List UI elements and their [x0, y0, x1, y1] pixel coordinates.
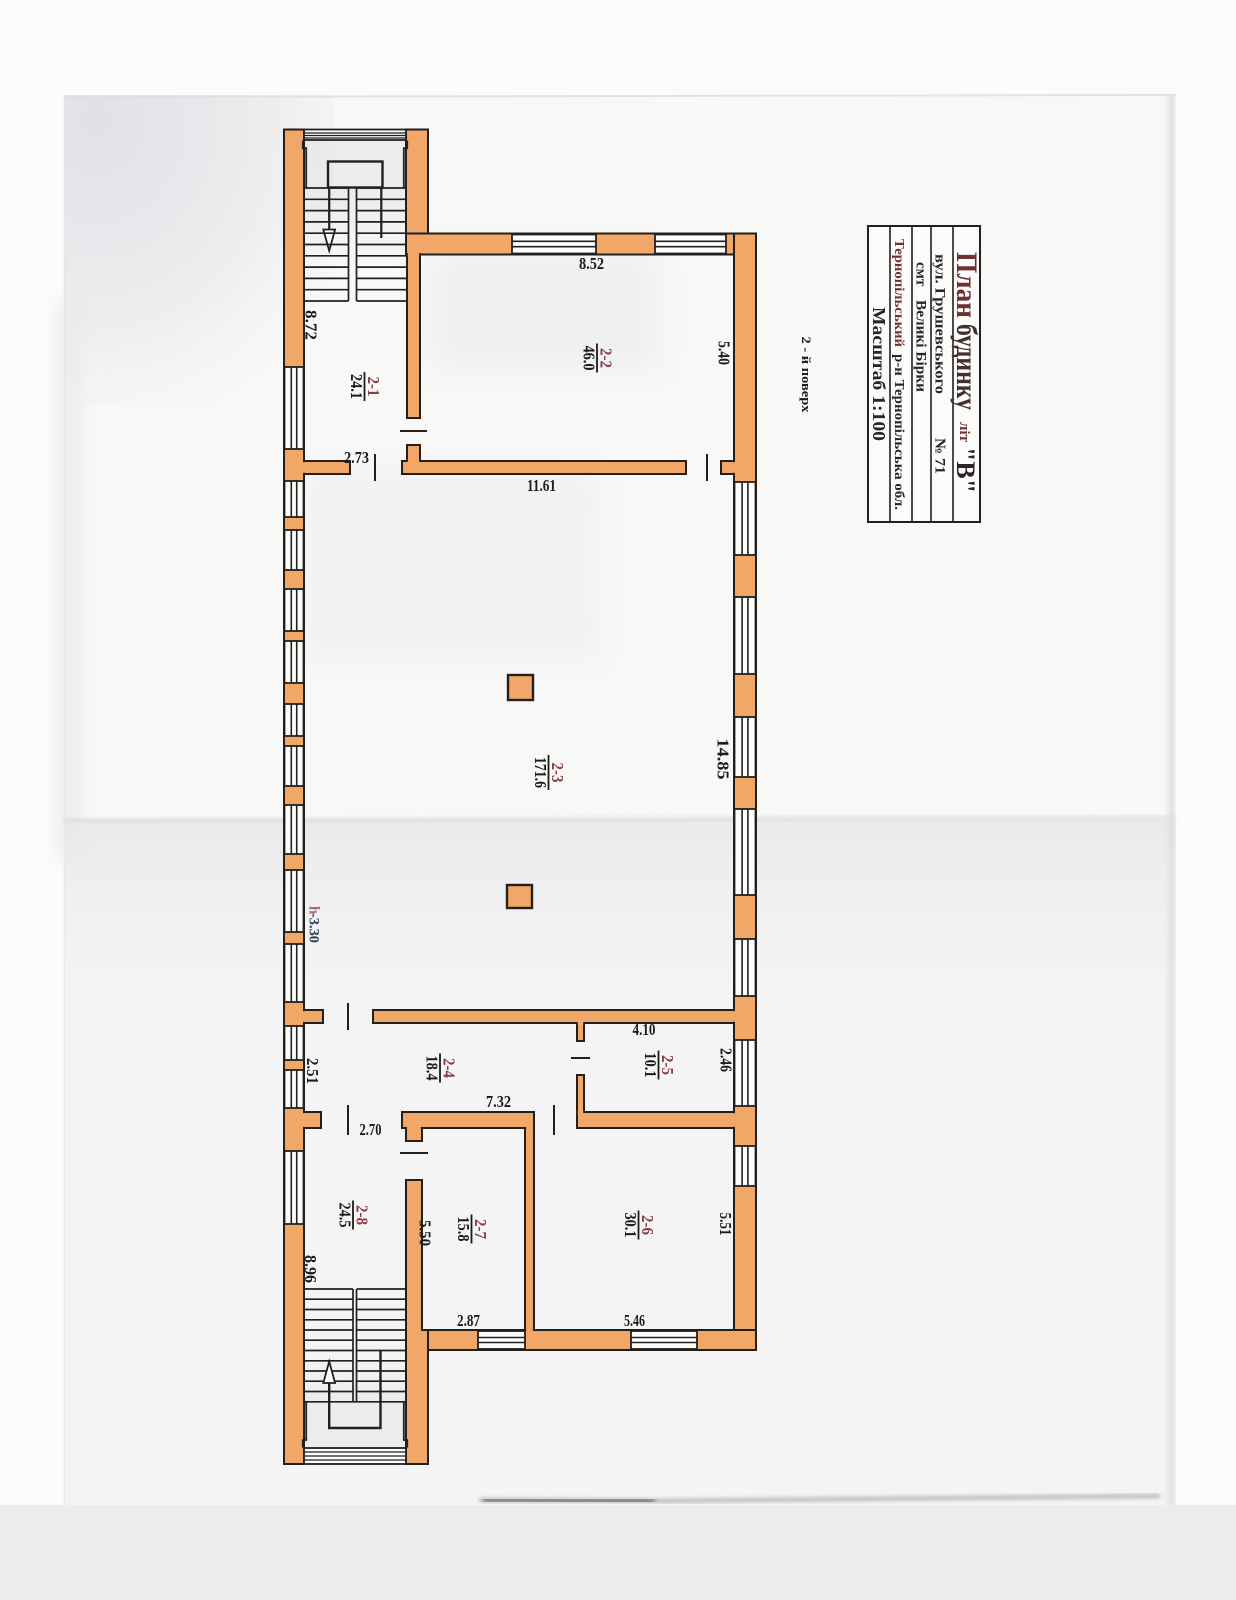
svg-text:№ 71: № 71: [932, 438, 948, 474]
svg-text:30.1: 30.1: [621, 1213, 640, 1238]
svg-text:Великі Бірки: Великі Бірки: [913, 300, 929, 392]
svg-text:2 - й поверх: 2 - й поверх: [799, 337, 813, 414]
svg-text:10.1: 10.1: [641, 1053, 660, 1078]
svg-text:7.32: 7.32: [486, 1092, 511, 1111]
svg-text:5.40: 5.40: [715, 341, 734, 365]
svg-text:8.96: 8.96: [301, 1255, 320, 1283]
svg-text:р-н Тернопільська обл.: р-н Тернопільська обл.: [891, 354, 906, 510]
svg-text:8.52: 8.52: [579, 254, 604, 273]
svg-text:смт: смт: [913, 262, 929, 287]
svg-text:24.5: 24.5: [336, 1203, 355, 1228]
svg-text:5.50: 5.50: [416, 1220, 435, 1246]
svg-text:"В": "В": [951, 447, 980, 493]
svg-text:2.70: 2.70: [360, 1120, 382, 1139]
svg-text:Масштаб 1:100: Масштаб 1:100: [869, 307, 889, 441]
svg-text:2.46: 2.46: [717, 1048, 736, 1072]
svg-text:2.51: 2.51: [303, 1058, 322, 1084]
svg-text:вул. Грушевського: вул. Грушевського: [932, 254, 948, 394]
svg-text:171.6: 171.6: [531, 757, 550, 788]
svg-text:4.10: 4.10: [633, 1020, 656, 1039]
svg-text:літ: літ: [956, 422, 972, 443]
svg-text:2.73: 2.73: [344, 448, 369, 467]
svg-text:46.0: 46.0: [580, 346, 599, 371]
svg-text:будинку: будинку: [950, 324, 983, 410]
svg-text:Тернопільський: Тернопільський: [891, 239, 906, 347]
svg-text:11.61: 11.61: [527, 476, 556, 495]
svg-text:-3.30: -3.30: [306, 913, 322, 943]
svg-text:2.87: 2.87: [457, 1311, 480, 1330]
svg-text:24.1: 24.1: [347, 374, 366, 399]
svg-text:14.85: 14.85: [714, 739, 733, 780]
svg-text:15.8: 15.8: [454, 1217, 473, 1242]
svg-text:18.4: 18.4: [423, 1056, 442, 1081]
svg-text:8.72: 8.72: [302, 310, 321, 340]
svg-text:План: План: [950, 252, 983, 318]
svg-text:5.46: 5.46: [624, 1311, 645, 1330]
svg-text:5.51: 5.51: [716, 1213, 735, 1236]
